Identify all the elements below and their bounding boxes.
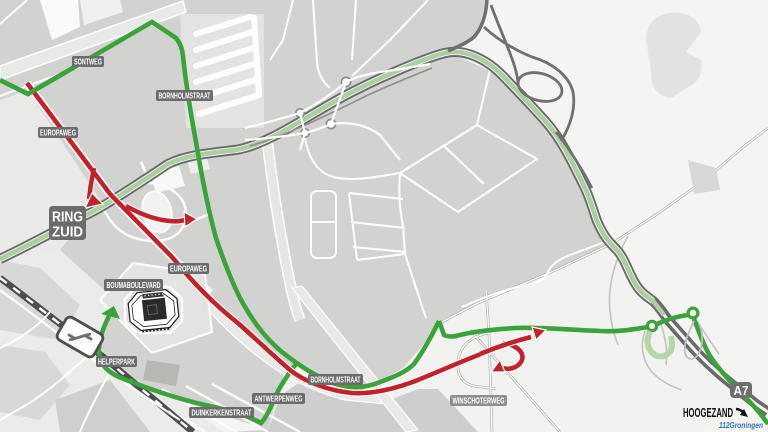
svg-text:WINSCHOTERWEG: WINSCHOTERWEG bbox=[453, 397, 505, 406]
svg-text:ANTWERPENWEG: ANTWERPENWEG bbox=[255, 395, 303, 404]
svg-text:HELPERPARK: HELPERPARK bbox=[98, 358, 135, 367]
svg-text:112Groningen: 112Groningen bbox=[719, 420, 763, 430]
svg-text:ZUID: ZUID bbox=[52, 225, 83, 241]
svg-text:BOUMABOULEVARD: BOUMABOULEVARD bbox=[107, 281, 161, 290]
svg-text:DUINKERKENSTRAAT: DUINKERKENSTRAAT bbox=[192, 409, 252, 418]
svg-text:RING: RING bbox=[52, 210, 83, 226]
svg-text:EUROPAWEG: EUROPAWEG bbox=[40, 129, 76, 138]
svg-text:BORNHOLMSTRAAT: BORNHOLMSTRAAT bbox=[311, 376, 361, 385]
svg-text:HOOGEZAND: HOOGEZAND bbox=[683, 405, 733, 420]
svg-text:EUROPAWEG: EUROPAWEG bbox=[170, 265, 207, 274]
svg-text:SONTWEG: SONTWEG bbox=[74, 58, 102, 67]
svg-text:A7: A7 bbox=[734, 383, 749, 398]
svg-text:BORNHOLMSTRAAT: BORNHOLMSTRAAT bbox=[159, 92, 211, 101]
